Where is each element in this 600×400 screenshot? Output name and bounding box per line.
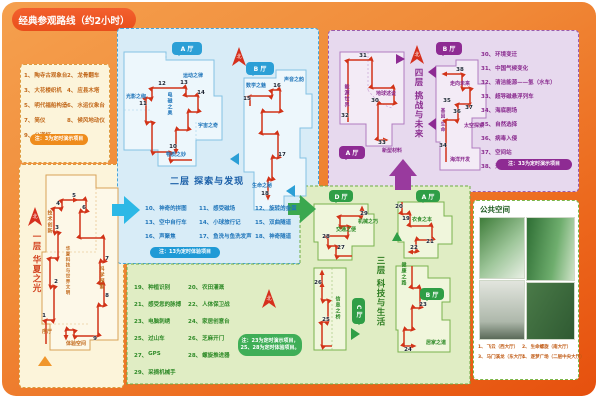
floor3-note-line2: 25、28为定时体验项目。 — [241, 345, 300, 352]
route-stop-5: 5 — [72, 193, 76, 199]
area-label-haiyang: 海洋开发 — [450, 158, 470, 164]
route-stop-30: 30 — [371, 98, 379, 104]
legend-item: 8、候风地动仪 — [67, 116, 107, 124]
legend-item: 20、农田灌溉 — [188, 283, 240, 291]
legend-item: 16、声聚焦 — [145, 232, 199, 240]
caption-item: 4、逐梦广场（二层中央大厅） — [522, 354, 576, 360]
area-label-shengyin: 声音之韵 — [284, 78, 304, 84]
legend-item: 22、人体保卫战 — [188, 300, 240, 308]
area-label-shuxue: 数学之魅 — [246, 84, 266, 90]
route-stop-23: 23 — [419, 302, 427, 308]
legend-item: 3、大花楼织机 — [24, 86, 67, 94]
area-label-yishi: 衣食之本 — [412, 218, 432, 224]
floor2-note-badge: 注：13为定时体验项目 — [150, 247, 220, 258]
floor3-note-badge: 注：23为定时演示项目， 25、28为定时体验项目。 — [238, 334, 302, 356]
legend-item: 29、采摘机械手 — [134, 368, 188, 376]
area-label-center: 华夏科技与世界文明 — [64, 246, 69, 310]
area-label-jiyin: 基因·生命 — [439, 108, 444, 138]
route-stop-11: 11 — [139, 101, 147, 107]
route-stop-35: 35 — [443, 98, 451, 104]
route-stop-14: 14 — [197, 90, 205, 96]
area-label-dianci: 电磁之奥 — [166, 92, 172, 124]
route-stop-25: 25 — [322, 317, 330, 323]
route-stop-32: 32 — [341, 113, 349, 119]
floor4-note-badge: 注：33为定时演示项目 — [496, 159, 572, 170]
museum-route-map-page: 经典参观路线（约2小时） — [0, 0, 600, 400]
route-stop-20: 20 — [395, 204, 403, 210]
legend-item: 17、鱼洗与鱼洗发声 — [199, 232, 255, 240]
floor1-title: 一层 华夏之光 — [30, 232, 42, 342]
legend-item: 13、空中自行车 — [145, 218, 199, 226]
floor1-legend-list: 1、陶寺古观象台2、龙骨翻车3、大花楼织机4、应县木塔5、明代福船构造6、水运仪… — [24, 71, 108, 139]
area-label-jiaotong: 交通之便 — [336, 228, 356, 234]
legend-item: 33、超导磁悬浮列车 — [481, 92, 573, 100]
area-label-tiyan: 体验空间 — [66, 342, 86, 348]
legend-item: 19、种植识别 — [134, 283, 188, 291]
legend-item: 12、旋转的金蛋 — [255, 204, 307, 212]
route-stop-15: 15 — [243, 96, 251, 102]
route-stop-22: 22 — [410, 245, 418, 251]
floor2-legend-list: 10、神奇的拼图11、感受磁场12、旋转的金蛋13、空中自行车14、小球旅行记1… — [145, 204, 313, 240]
legend-item: 21、感受您的脉搏 — [134, 300, 188, 308]
public-space-title: 公共空间 — [480, 204, 510, 215]
legend-item: 15、双曲隧道 — [255, 218, 307, 226]
photo-dinosaur — [479, 280, 525, 340]
legend-item: 7、简仪 — [24, 116, 67, 124]
floor2-hallA-bubble: A 厅 — [172, 42, 202, 55]
legend-item: 18、神奇隧道 — [255, 232, 307, 240]
route-stop-10: 10 — [169, 144, 177, 150]
photo-plaza — [526, 282, 575, 340]
legend-item: 1、陶寺古观象台 — [24, 71, 67, 79]
floor3-legend-list: 19、种植识别20、农田灌溉21、感受您的脉搏22、人体保卫战23、电脑刺绣24… — [134, 283, 242, 376]
floor3-hallD-bubble: D 厅 — [329, 190, 353, 202]
public-captions-list: 1、飞云（西大厅）2、生命螺旋（南大厅）3、马门溪龙（东大厅）4、逐梦广场（二层… — [478, 344, 576, 360]
route-stop-28: 28 — [322, 234, 330, 240]
legend-item: 34、海底剧场 — [481, 106, 573, 114]
area-label-jiankang: 健康之路 — [400, 262, 406, 292]
floor4-title: 四层 挑战与未来 — [412, 68, 424, 152]
route-stop-29: 29 — [360, 211, 368, 217]
area-label-shengming: 生命之秘 — [252, 184, 272, 190]
area-label-yundong: 运动之律 — [183, 74, 203, 80]
route-stop-2: 2 — [54, 279, 58, 285]
legend-item: 35、自然选择 — [481, 120, 573, 128]
legend-item: 2、龙骨翻车 — [67, 71, 107, 79]
legend-item: 6、水运仪象台 — [67, 101, 107, 109]
route-stop-33: 33 — [378, 140, 386, 146]
area-label-jujia: 居家之道 — [426, 341, 446, 347]
legend-item: 26、芝麻开门 — [188, 334, 240, 342]
north-arrow-icon: 北 — [261, 288, 277, 310]
photo-life-spiral — [526, 217, 575, 281]
legend-item: 4、应县木塔 — [67, 86, 107, 94]
area-label-xincai: 新型材料 — [382, 149, 402, 155]
route-stop-1: 1 — [42, 313, 46, 319]
legend-item: 5、明代福船构造 — [24, 101, 67, 109]
photo-feiyun — [479, 217, 525, 279]
route-stop-18: 18 — [261, 191, 269, 197]
floor4-hallB-bubble: B 厅 — [436, 42, 462, 55]
area-label-kexue: 科学探索 — [98, 266, 104, 298]
legend-item: 25、过山车 — [134, 334, 188, 342]
legend-item: 28、螺旋推进器 — [188, 351, 240, 359]
north-arrow-icon: 北 — [27, 206, 43, 228]
route-stop-8: 8 — [105, 293, 109, 299]
route-stop-6: 6 — [82, 205, 86, 211]
north-arrow-icon: 北 — [409, 44, 425, 66]
entrance-marker — [38, 356, 52, 366]
area-label-zouxiang: 走向未来 — [450, 82, 470, 88]
floor2-hallB-bubble: B 厅 — [246, 62, 274, 75]
route-stop-36: 36 — [453, 109, 461, 115]
caption-item: 1、飞云（西大厅） — [478, 344, 522, 350]
area-label-wuzhi: 物质之妙 — [166, 153, 186, 159]
area-label-xuting: 序厅 — [42, 330, 52, 336]
floor1-note-badge: 注：3为定时演示项目 — [30, 134, 88, 145]
route-stop-38: 38 — [456, 67, 464, 73]
route-stop-19: 19 — [402, 216, 410, 222]
route-stop-37: 37 — [465, 105, 473, 111]
area-label-jixie: 机械之巧 — [358, 220, 378, 226]
floor3-note-line1: 注：23为定时演示项目， — [242, 338, 299, 345]
floor4-hallA-bubble: A 厅 — [339, 146, 365, 159]
area-label-guangying: 光影之绚 — [126, 95, 146, 101]
legend-item: 11、感受磁场 — [199, 204, 255, 212]
area-label-jishu: 技术创新 — [46, 210, 52, 240]
floor3-hallB-bubble: B 厅 — [420, 288, 444, 300]
svg-text:北: 北 — [236, 53, 241, 60]
floor3-title: 三层 科技与生活 — [374, 256, 386, 340]
route-stop-34: 34 — [439, 143, 447, 149]
area-label-diqiu: 地球述说 — [376, 92, 396, 98]
floor3-hallC-bubble: C 厅 — [352, 298, 365, 324]
legend-item: 24、家居创意台 — [188, 317, 240, 325]
route-stop-24: 24 — [404, 347, 412, 353]
route-stop-3: 3 — [55, 225, 59, 231]
north-arrow-icon: 北 — [231, 46, 247, 68]
svg-text:北: 北 — [266, 295, 271, 302]
route-stop-12: 12 — [158, 81, 166, 87]
legend-item: 32、清洁能源——氢（水车） — [481, 78, 573, 86]
route-stop-17: 17 — [278, 152, 286, 158]
floor4-legend-list: 30、环境变迁31、中国气候变化32、清洁能源——氢（水车）33、超导磁悬浮列车… — [481, 50, 573, 170]
route-stop-21: 21 — [426, 239, 434, 245]
legend-item: 27、GPS — [134, 351, 188, 359]
area-label-xinxi: 信息之桥 — [334, 296, 340, 328]
svg-text:北: 北 — [414, 51, 419, 58]
route-stop-7: 7 — [105, 256, 109, 262]
route-stop-16: 16 — [273, 83, 281, 89]
floor2-title: 二层 探索与发现 — [170, 174, 244, 187]
svg-text:北: 北 — [32, 213, 37, 220]
route-stop-9: 9 — [93, 336, 97, 342]
route-stop-27: 27 — [337, 245, 345, 251]
floor3-hallA-bubble: A 厅 — [416, 190, 440, 202]
legend-item: 37、空间站 — [481, 148, 573, 156]
legend-item: 31、中国气候变化 — [481, 64, 573, 72]
route-stop-13: 13 — [180, 80, 188, 86]
route-stop-26: 26 — [314, 280, 322, 286]
route-stop-4: 4 — [56, 201, 60, 207]
legend-item: 30、环境变迁 — [481, 50, 573, 58]
legend-item: 10、神奇的拼图 — [145, 204, 199, 212]
legend-item: 23、电脑刺绣 — [134, 317, 188, 325]
caption-item: 2、生命螺旋（南大厅） — [522, 344, 576, 350]
area-label-nengyuan: 能源世界 — [343, 84, 349, 116]
legend-item: 14、小球旅行记 — [199, 218, 255, 226]
caption-item: 3、马门溪龙（东大厅） — [478, 354, 522, 360]
route-stop-31: 31 — [359, 53, 367, 59]
page-title: 经典参观路线（约2小时） — [12, 8, 136, 31]
legend-item: 36、病毒入侵 — [481, 134, 573, 142]
area-label-yuzhou: 宇宙之奇 — [198, 124, 218, 130]
